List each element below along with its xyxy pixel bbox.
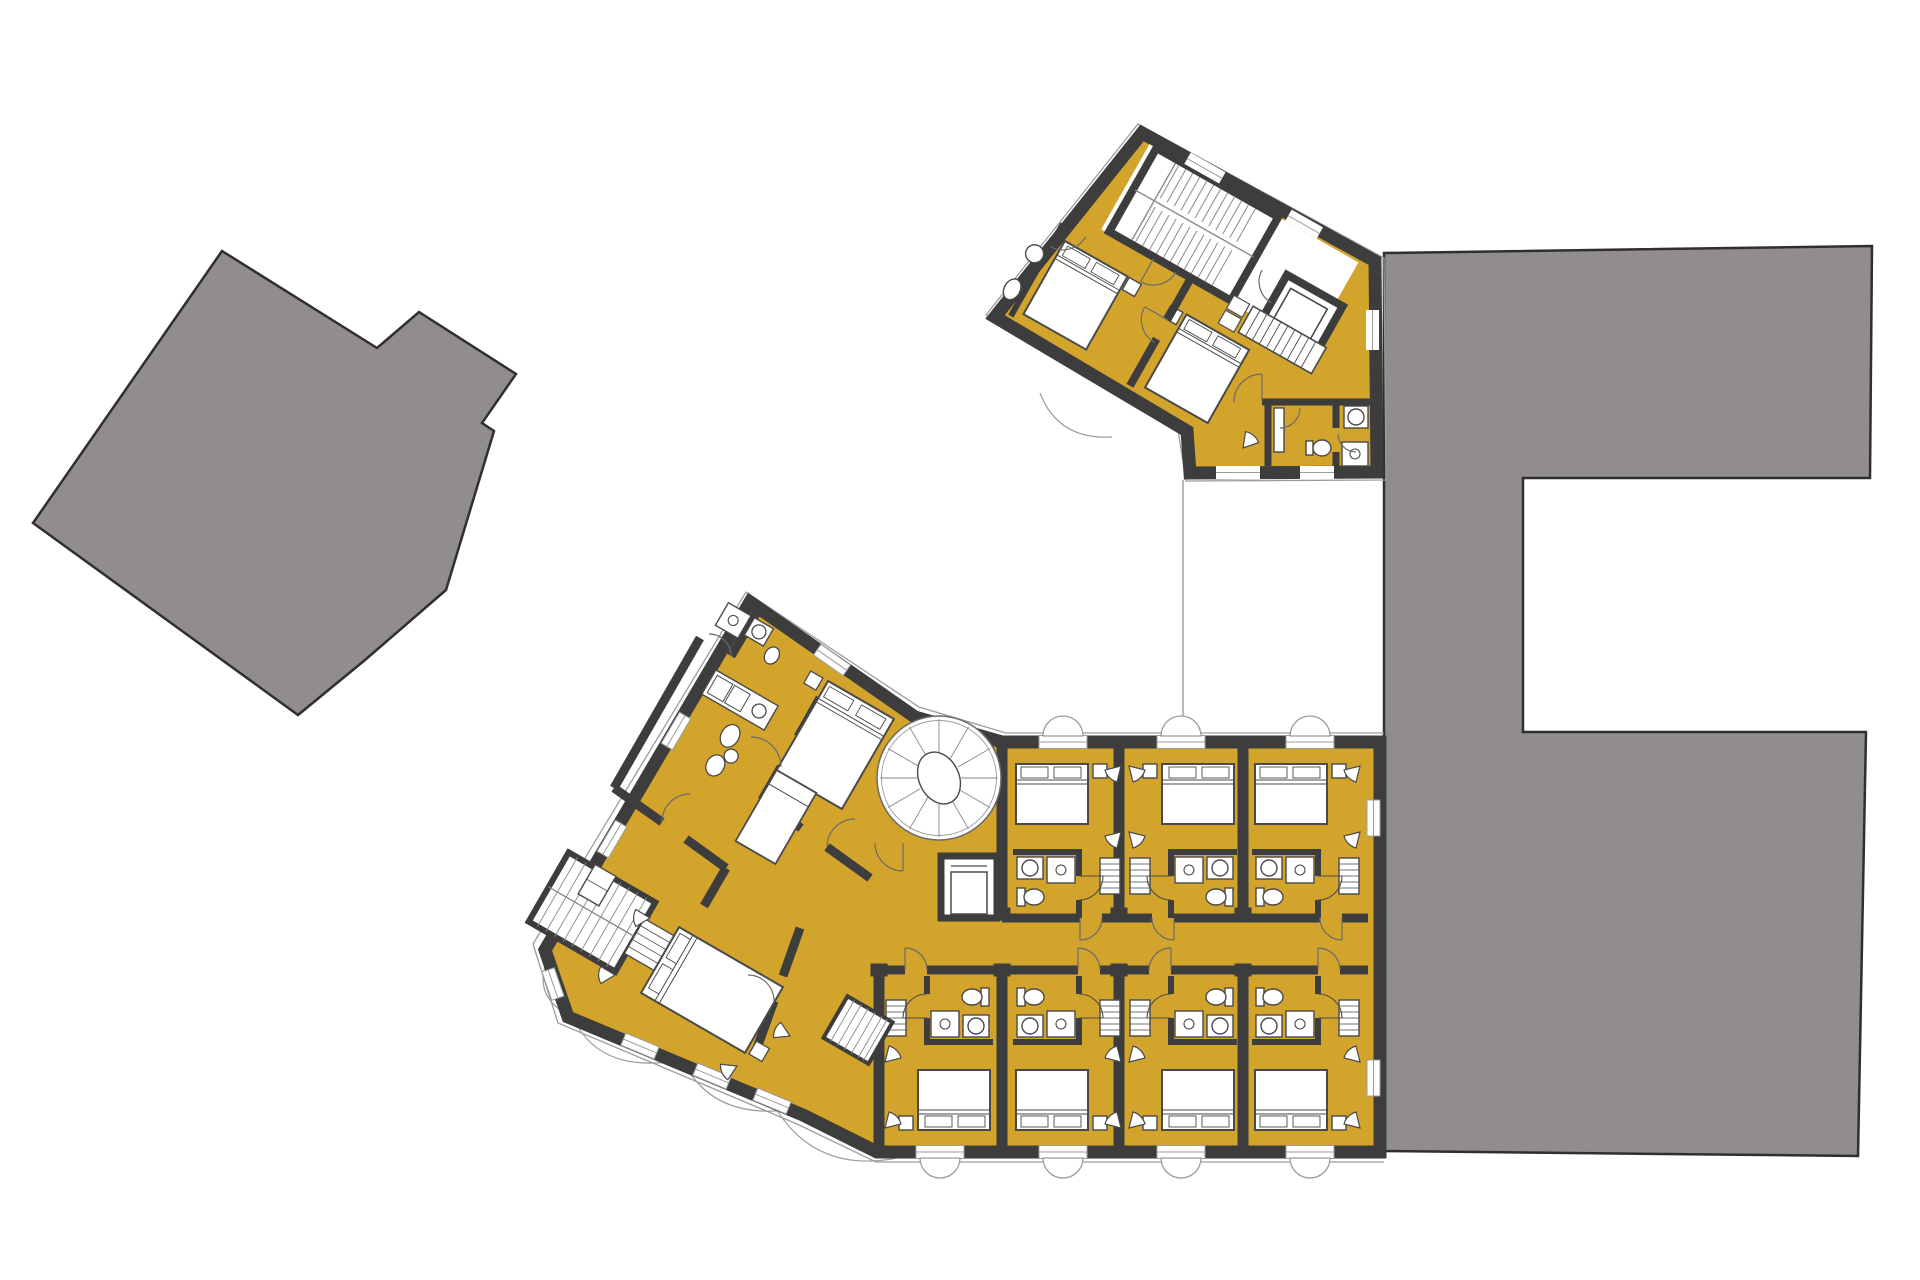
shower-drain-icon bbox=[1350, 449, 1360, 459]
awning-arc bbox=[1161, 716, 1201, 736]
door-panel bbox=[1274, 408, 1284, 452]
elevator-cab bbox=[951, 872, 987, 914]
context-building-east bbox=[1384, 246, 1872, 1156]
awning-arc bbox=[1290, 716, 1330, 736]
awning-arc bbox=[1043, 1158, 1083, 1178]
floor-plan-canvas bbox=[0, 0, 1920, 1280]
awning-arc bbox=[1290, 1158, 1330, 1178]
floor-plan-page bbox=[0, 0, 1920, 1280]
spiral-staircase bbox=[877, 716, 1001, 840]
awning-arc bbox=[1043, 716, 1083, 736]
toilet-tank bbox=[1306, 441, 1313, 455]
sink-icon bbox=[1348, 409, 1364, 425]
bay-window-arc bbox=[1040, 393, 1112, 437]
main-floor-plan bbox=[529, 592, 1384, 1178]
awning-arc bbox=[920, 1158, 960, 1178]
toilet-icon bbox=[1313, 440, 1331, 456]
annex-floor-plan bbox=[986, 105, 1386, 481]
context-building-west bbox=[33, 251, 516, 715]
awning-arc bbox=[1161, 1158, 1201, 1178]
elevator bbox=[941, 856, 997, 918]
